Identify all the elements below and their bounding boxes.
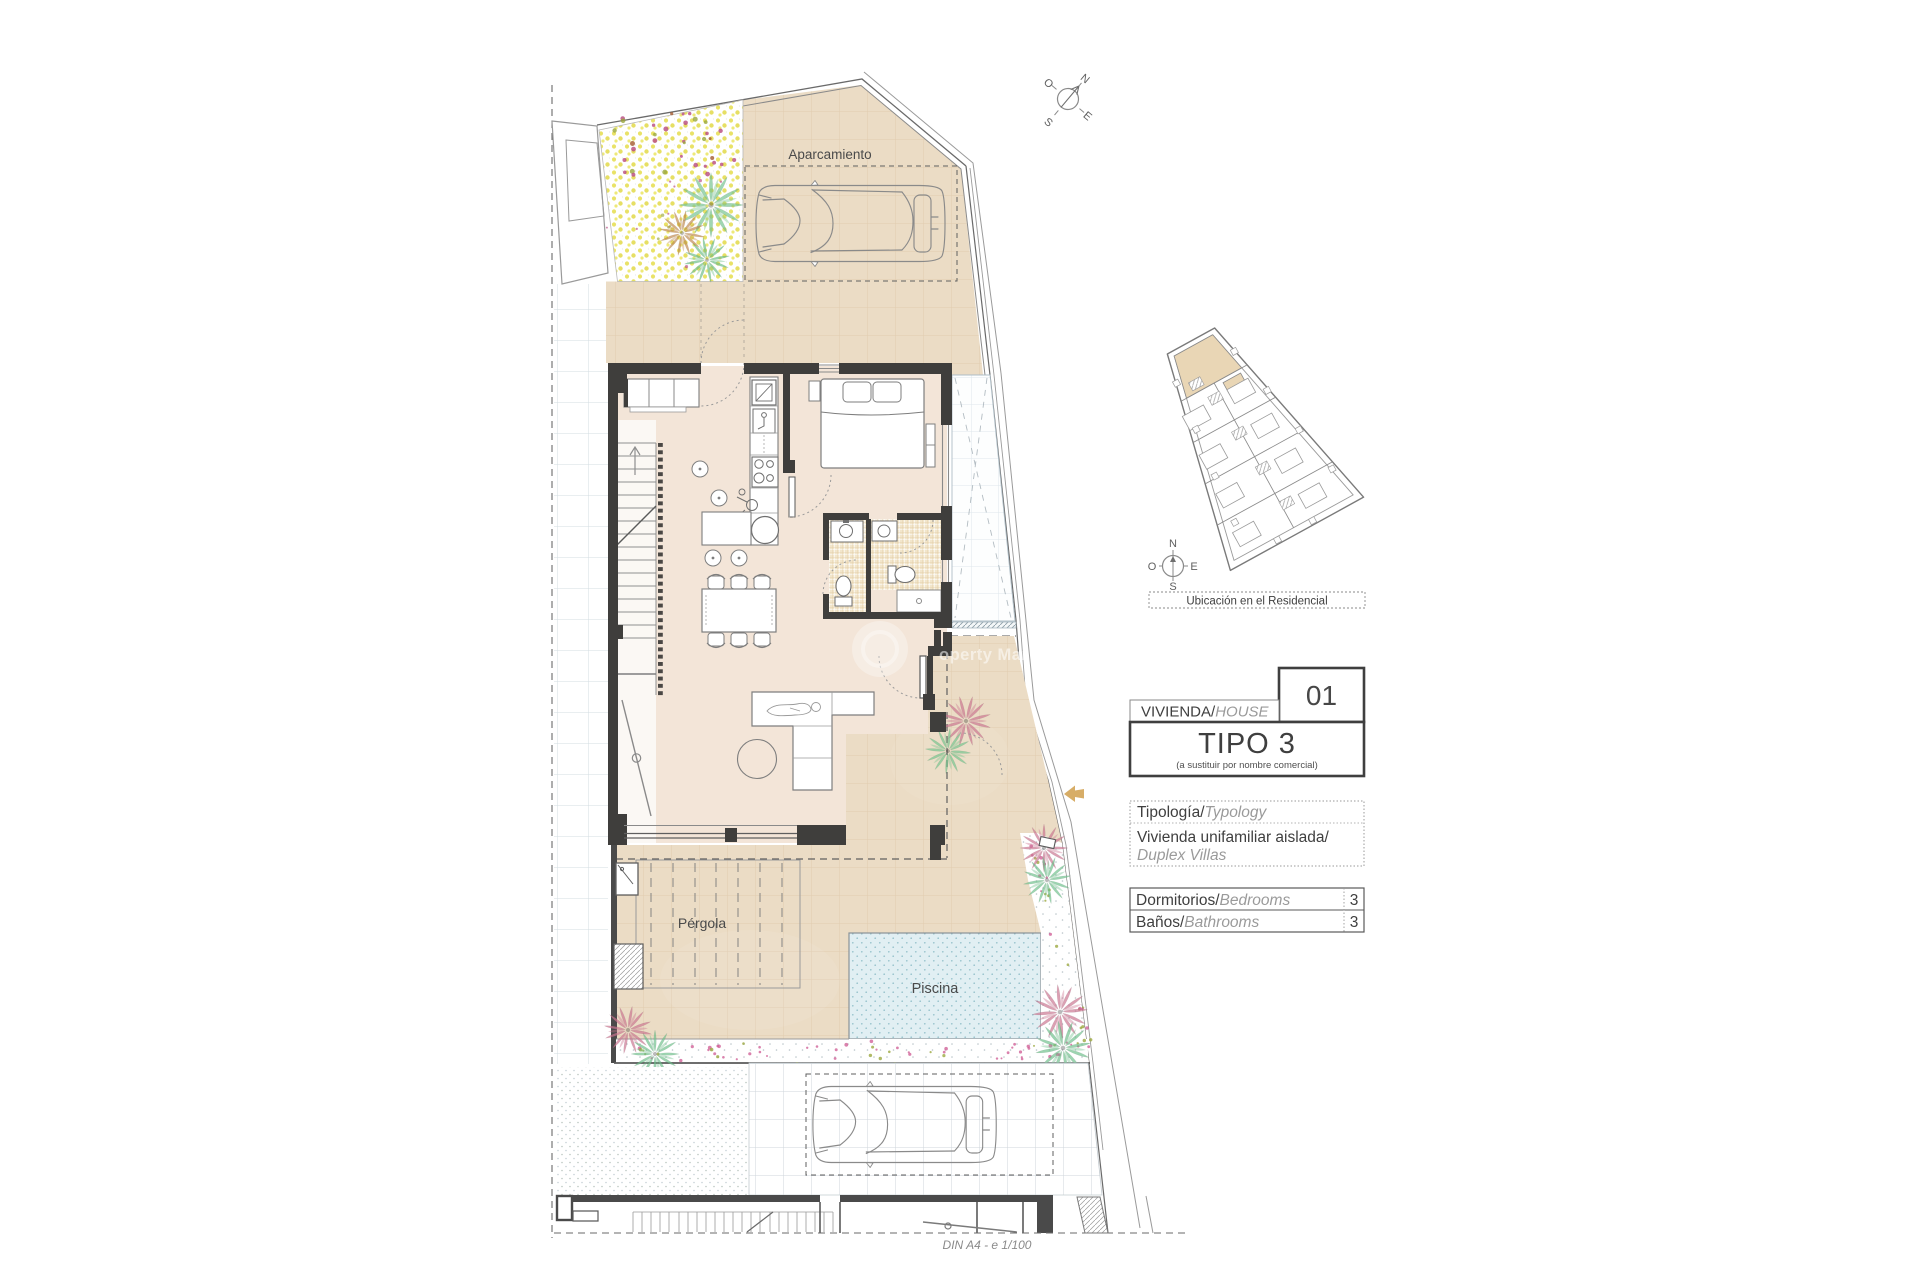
svg-text:Duplex Villas: Duplex Villas — [1137, 847, 1227, 864]
svg-text:S: S — [1169, 581, 1176, 593]
svg-text:3: 3 — [1350, 914, 1359, 931]
svg-text:(a sustituir por nombre comerc: (a sustituir por nombre comercial) — [1176, 760, 1318, 771]
svg-text:DIN A4 - e 1/100: DIN A4 - e 1/100 — [943, 1238, 1032, 1252]
svg-text:E: E — [1190, 561, 1197, 573]
svg-text:01: 01 — [1306, 680, 1337, 711]
svg-text:TIPO 3: TIPO 3 — [1198, 728, 1296, 760]
svg-text:N: N — [1169, 538, 1177, 550]
svg-text:O: O — [1148, 561, 1157, 573]
svg-text:Baños/Bathrooms: Baños/Bathrooms — [1136, 914, 1259, 931]
svg-text:3: 3 — [1350, 892, 1359, 909]
svg-text:Ubicación en el Residencial: Ubicación en el Residencial — [1186, 596, 1327, 608]
svg-text:Piscina: Piscina — [912, 981, 960, 997]
svg-text:operty Mar: operty Mar — [939, 646, 1028, 664]
svg-text:Aparcamiento: Aparcamiento — [788, 147, 871, 162]
svg-text:VIVIENDA/HOUSE: VIVIENDA/HOUSE — [1141, 704, 1270, 721]
svg-text:Pérgola: Pérgola — [678, 915, 726, 931]
svg-text:Tipología/Typology: Tipología/Typology — [1137, 804, 1267, 821]
svg-text:Dormitorios/Bedrooms: Dormitorios/Bedrooms — [1136, 892, 1290, 909]
svg-text:Vivienda unifamiliar aislada/: Vivienda unifamiliar aislada/ — [1137, 829, 1330, 846]
